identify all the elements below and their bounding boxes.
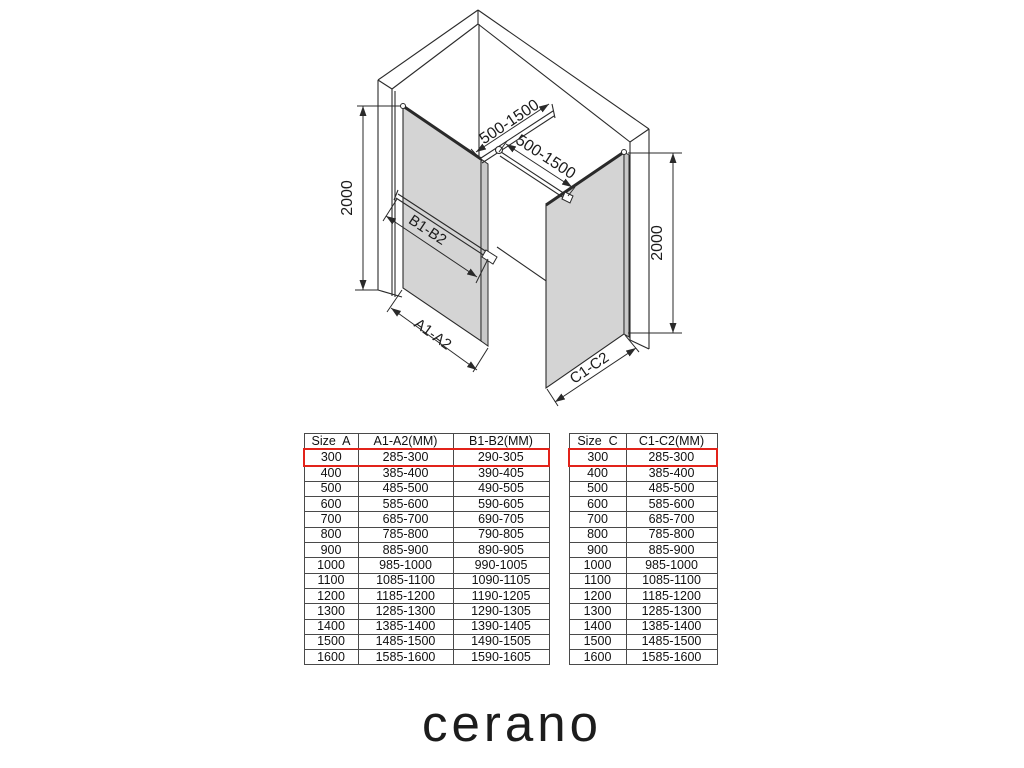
table-cell: 700 <box>304 512 358 527</box>
table-cell: 285-300 <box>626 449 717 465</box>
table-row: 14001385-14001390-1405 <box>304 619 549 634</box>
column-header: C1-C2(MM) <box>626 434 717 450</box>
table-cell: 500 <box>569 481 626 496</box>
table-cell: 900 <box>304 543 358 558</box>
table-cell: 600 <box>569 497 626 512</box>
page: 500-1500 500-1500 B1-B2 A1-A2 <box>0 0 1024 768</box>
table-cell: 1400 <box>304 619 358 634</box>
table-cell: 1590-1605 <box>453 650 549 665</box>
table-row: 12001185-12001190-1205 <box>304 588 549 603</box>
table-row: 12001185-1200 <box>569 588 717 603</box>
table-cell: 900 <box>569 543 626 558</box>
table-cell: 500 <box>304 481 358 496</box>
table-cell: 300 <box>569 449 626 465</box>
brand-logo: cerano <box>0 694 1024 753</box>
table-cell: 990-1005 <box>453 558 549 573</box>
table-cell: 885-900 <box>358 543 453 558</box>
table-cell: 800 <box>304 527 358 542</box>
table-cell: 985-1000 <box>626 558 717 573</box>
table-cell: 1390-1405 <box>453 619 549 634</box>
dimension-height-right: 2000 <box>628 153 682 333</box>
table-cell: 400 <box>304 466 358 482</box>
table-cell: 1285-1300 <box>358 604 453 619</box>
table-cell: 1200 <box>304 588 358 603</box>
table-cell: 1100 <box>304 573 358 588</box>
table-cell: 690-705 <box>453 512 549 527</box>
table-cell: 685-700 <box>626 512 717 527</box>
table-row: 400385-400390-405 <box>304 466 549 482</box>
table-cell: 300 <box>304 449 358 465</box>
table-cell: 1585-1600 <box>626 650 717 665</box>
table-cell: 1190-1205 <box>453 588 549 603</box>
table-cell: 1500 <box>569 634 626 649</box>
table-cell: 490-505 <box>453 481 549 496</box>
header-row: Size AA1-A2(MM)B1-B2(MM) <box>304 434 549 450</box>
table-row: 800785-800790-805 <box>304 527 549 542</box>
table-row: 800785-800 <box>569 527 717 542</box>
table-cell: 1185-1200 <box>626 588 717 603</box>
table-row: 400385-400 <box>569 466 717 482</box>
table-cell: 585-600 <box>626 497 717 512</box>
table-cell: 885-900 <box>626 543 717 558</box>
header-row: Size CC1-C2(MM) <box>569 434 717 450</box>
dimension-label: 500-1500 <box>512 132 578 183</box>
glass-panel-right <box>546 150 629 389</box>
table-row: 11001085-1100 <box>569 573 717 588</box>
table-row: 500485-500 <box>569 481 717 496</box>
table-cell: 1400 <box>569 619 626 634</box>
table-cell: 1600 <box>569 650 626 665</box>
table-cell: 385-400 <box>626 466 717 482</box>
table-cell: 485-500 <box>626 481 717 496</box>
table-cell: 385-400 <box>358 466 453 482</box>
table-row: 14001385-1400 <box>569 619 717 634</box>
table-row: 500485-500490-505 <box>304 481 549 496</box>
table-cell: 1385-1400 <box>626 619 717 634</box>
dimension-bar-right: 500-1500 <box>499 132 579 196</box>
column-header: Size C <box>569 434 626 450</box>
table-cell: 1085-1100 <box>358 573 453 588</box>
table-cell: 1200 <box>569 588 626 603</box>
size-table-a: Size AA1-A2(MM)B1-B2(MM)300285-300290-30… <box>303 433 550 665</box>
table-cell: 1285-1300 <box>626 604 717 619</box>
table-cell: 290-305 <box>453 449 549 465</box>
table-row: 1000985-1000990-1005 <box>304 558 549 573</box>
table-cell: 1485-1500 <box>358 634 453 649</box>
table-row: 16001585-16001590-1605 <box>304 650 549 665</box>
table-row: 1000985-1000 <box>569 558 717 573</box>
table-cell: 1300 <box>569 604 626 619</box>
table-cell: 485-500 <box>358 481 453 496</box>
table-row: 700685-700690-705 <box>304 512 549 527</box>
table-cell: 1000 <box>569 558 626 573</box>
table-cell: 390-405 <box>453 466 549 482</box>
column-header: B1-B2(MM) <box>453 434 549 450</box>
dimension-label: 2000 <box>649 225 666 261</box>
dimension-label: A1-A2 <box>411 315 455 353</box>
table-cell: 1600 <box>304 650 358 665</box>
wall-fixing-dot-right <box>622 150 627 155</box>
table-row: 15001485-15001490-1505 <box>304 634 549 649</box>
dimension-label: 2000 <box>339 180 356 216</box>
table-cell: 1500 <box>304 634 358 649</box>
table-cell: 1485-1500 <box>626 634 717 649</box>
table-cell: 790-805 <box>453 527 549 542</box>
table-cell: 1090-1105 <box>453 573 549 588</box>
table-cell: 1085-1100 <box>626 573 717 588</box>
table-row: 13001285-1300 <box>569 604 717 619</box>
table-cell: 800 <box>569 527 626 542</box>
table-cell: 585-600 <box>358 497 453 512</box>
table-cell: 1585-1600 <box>358 650 453 665</box>
table-cell: 1100 <box>569 573 626 588</box>
table-cell: 590-605 <box>453 497 549 512</box>
size-table-c: Size CC1-C2(MM)300285-300400385-40050048… <box>568 433 718 665</box>
table-row: 900885-900 <box>569 543 717 558</box>
table-cell: 785-800 <box>626 527 717 542</box>
table-row: 16001585-1600 <box>569 650 717 665</box>
wall-fixing-dot-left <box>401 104 406 109</box>
table-cell: 1000 <box>304 558 358 573</box>
table-row: 15001485-1500 <box>569 634 717 649</box>
table-cell: 600 <box>304 497 358 512</box>
table-row: 300285-300290-305 <box>304 449 549 465</box>
table-cell: 985-1000 <box>358 558 453 573</box>
table-cell: 1300 <box>304 604 358 619</box>
table-row: 600585-600590-605 <box>304 497 549 512</box>
table-row: 900885-900890-905 <box>304 543 549 558</box>
table-cell: 1185-1200 <box>358 588 453 603</box>
table-row: 600585-600 <box>569 497 717 512</box>
table-cell: 1490-1505 <box>453 634 549 649</box>
bar-swivel-joint <box>496 147 503 154</box>
table-cell: 700 <box>569 512 626 527</box>
column-header: A1-A2(MM) <box>358 434 453 450</box>
table-cell: 1290-1305 <box>453 604 549 619</box>
table-cell: 890-905 <box>453 543 549 558</box>
table-row: 13001285-13001290-1305 <box>304 604 549 619</box>
table-cell: 285-300 <box>358 449 453 465</box>
table-cell: 1385-1400 <box>358 619 453 634</box>
column-header: Size A <box>304 434 358 450</box>
table-cell: 685-700 <box>358 512 453 527</box>
table-cell: 400 <box>569 466 626 482</box>
technical-diagram: 500-1500 500-1500 B1-B2 A1-A2 <box>0 0 1024 425</box>
table-row: 11001085-11001090-1105 <box>304 573 549 588</box>
table-cell: 785-800 <box>358 527 453 542</box>
table-row: 700685-700 <box>569 512 717 527</box>
table-row: 300285-300 <box>569 449 717 465</box>
